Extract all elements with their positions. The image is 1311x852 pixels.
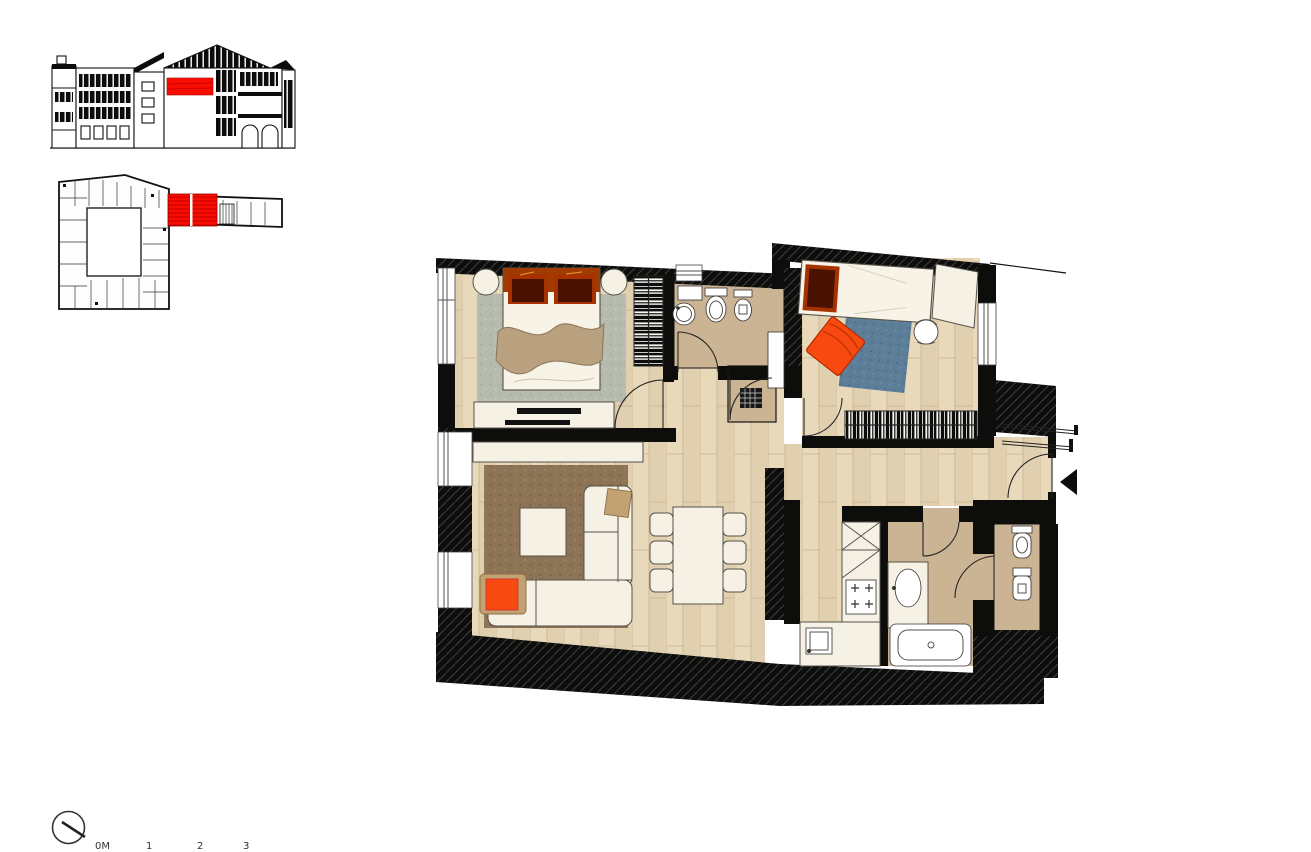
window-icon [438,432,472,486]
window-icon [438,552,472,608]
hallway-floor [765,444,1000,506]
entrance-arrow-icon [1060,469,1077,495]
courtyard [87,208,141,276]
chair [723,541,746,564]
mid-wall [765,468,784,620]
kitchen-corridor-floor [800,500,842,624]
chair [650,513,673,536]
nightstand [473,269,499,295]
window-icon [978,303,996,365]
scale-label: 1 [146,841,152,852]
north-indicator [48,806,92,849]
bidet-icon [1013,568,1031,600]
bathtub-icon [890,624,971,666]
bathroom-1 [673,286,752,325]
dining-table [673,507,723,604]
bedroom1-south-wall [455,428,676,442]
section-main-block [164,45,282,148]
tv [517,408,581,414]
apartment-floorplan-drawing [428,232,1098,707]
master-bed [496,268,604,390]
toilet-icon [1012,526,1032,558]
stove-icon [846,580,876,614]
gable-roof [164,45,270,68]
living-room [473,442,643,628]
cushion [604,488,631,517]
bedroom1-east-wall [663,274,674,382]
kitchen-sink-icon [806,628,832,654]
compass-needle-icon [62,822,85,837]
nightstand [601,269,627,295]
coffee-table [520,508,566,556]
console [473,442,643,462]
section-red-highlight [167,78,213,95]
facade-line [990,263,1066,273]
sink-icon [673,303,695,325]
section-left-tower [52,56,76,148]
wc-east-wall [1040,524,1058,636]
wc-north-wall [994,500,1056,524]
arched-window [262,125,278,148]
niche-shelf [768,332,784,388]
basin-icon [895,569,921,607]
kitchen-bath-divider [880,522,888,666]
window-icon [676,265,702,281]
toilet-icon [705,288,727,322]
single-bed [798,260,933,323]
chair [650,569,673,592]
kitchen-north-wall [842,506,923,522]
key-plan-drawing [55,168,285,318]
chair [723,513,746,536]
southeast-corner-wall [973,630,1058,678]
window-icon [438,268,455,364]
arched-window [242,125,258,148]
section-mid-block [76,68,134,148]
wardrobe [845,411,977,439]
dining-area [650,507,746,604]
unit-divider [190,194,193,226]
bidet-icon [734,290,752,321]
orange-cushion [486,579,518,610]
chimney [57,56,66,64]
building-section-drawing [50,38,295,153]
wardrobe [634,276,663,366]
soundbar [505,420,570,425]
shelf [678,286,702,300]
scale-label: 0M [95,841,110,852]
section-setback-block [134,52,164,148]
shaft [784,268,802,366]
keyplan-stair [220,204,234,224]
scale-label: 3 [243,841,249,852]
chair [650,541,673,564]
scale-label: 2 [197,841,203,852]
chair [723,569,746,592]
desk-chair [914,320,938,344]
desk [932,264,978,328]
